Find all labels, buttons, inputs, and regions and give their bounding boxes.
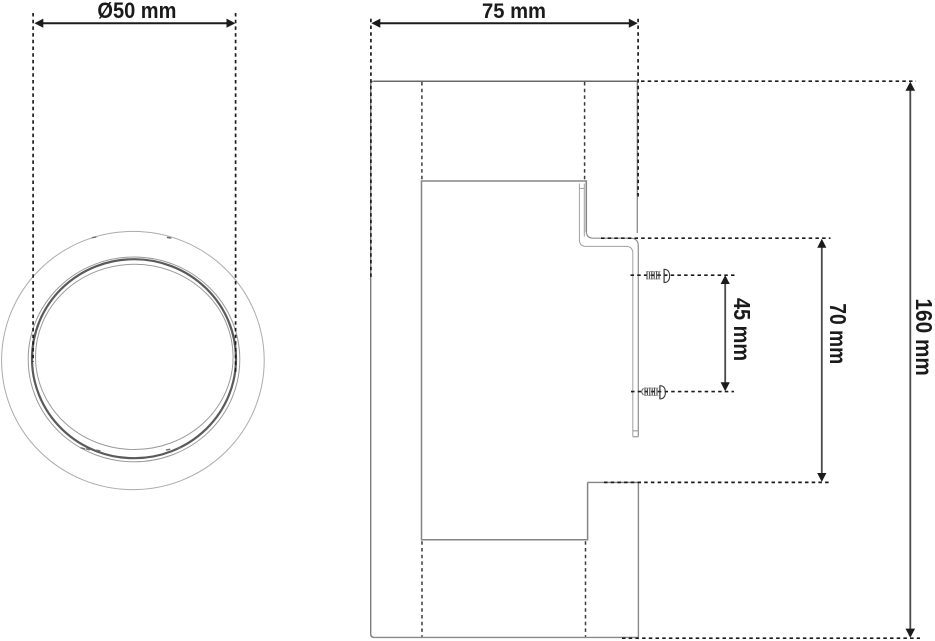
svg-text:70 mm: 70 mm [825,303,851,364]
svg-text:75 mm: 75 mm [482,0,546,23]
svg-text:Ø50 mm: Ø50 mm [97,0,176,23]
svg-text:45 mm: 45 mm [729,298,755,361]
svg-text:160 mm: 160 mm [911,299,935,376]
